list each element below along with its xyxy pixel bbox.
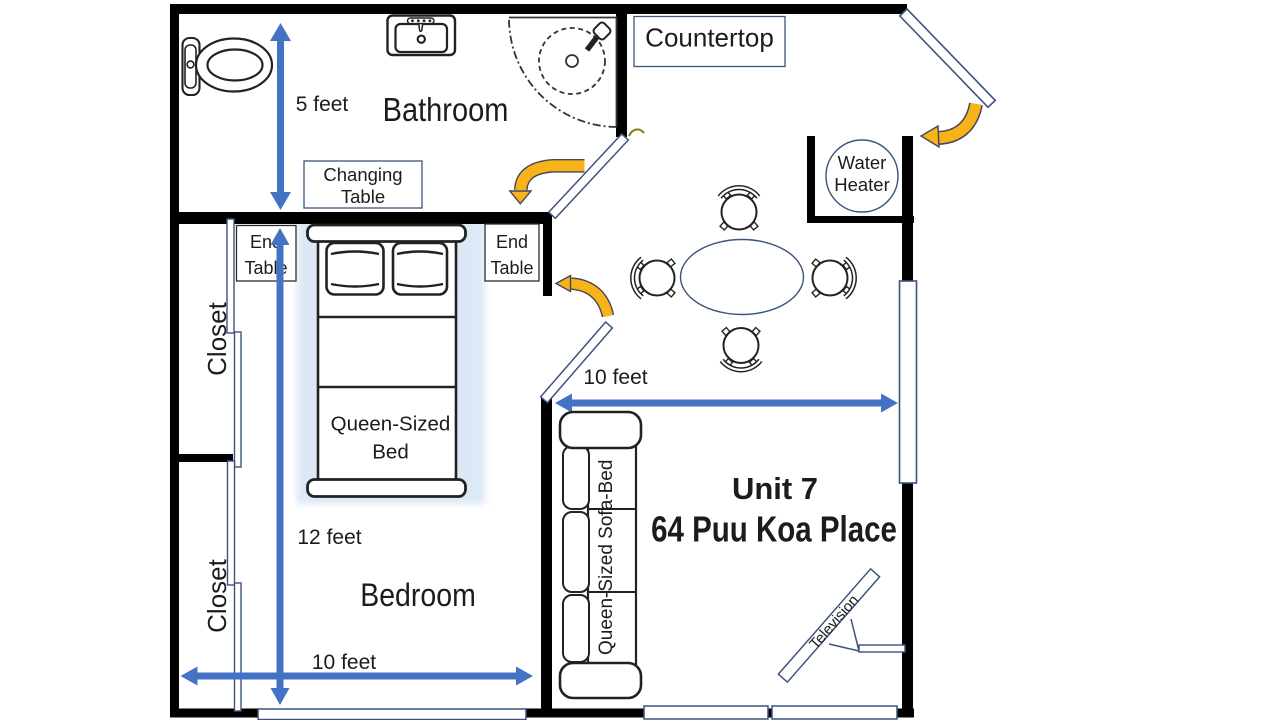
svg-text:64 Puu Koa Place: 64 Puu Koa Place xyxy=(651,509,897,549)
svg-text:Table: Table xyxy=(341,186,385,207)
svg-text:Changing: Changing xyxy=(323,164,402,185)
svg-text:Television: Television xyxy=(806,592,862,653)
svg-text:Bedroom: Bedroom xyxy=(360,576,476,613)
svg-text:Bathroom: Bathroom xyxy=(383,91,509,128)
svg-text:Unit 7: Unit 7 xyxy=(732,471,818,506)
svg-text:5 feet: 5 feet xyxy=(296,93,349,116)
svg-text:10 feet: 10 feet xyxy=(312,651,376,674)
svg-text:12 feet: 12 feet xyxy=(297,526,361,549)
svg-text:Queen-Sized Sofa-Bed: Queen-Sized Sofa-Bed xyxy=(596,460,617,655)
svg-text:10 feet: 10 feet xyxy=(583,366,647,389)
svg-text:Table: Table xyxy=(490,258,533,278)
svg-text:Water: Water xyxy=(838,152,887,173)
svg-text:Countertop: Countertop xyxy=(645,23,774,53)
svg-text:Closet: Closet xyxy=(202,558,232,632)
svg-text:Heater: Heater xyxy=(834,174,890,195)
svg-text:Closet: Closet xyxy=(202,301,232,375)
svg-text:End: End xyxy=(496,232,528,252)
svg-text:Queen-Sized: Queen-Sized xyxy=(331,413,451,436)
svg-text:Bed: Bed xyxy=(372,441,408,464)
